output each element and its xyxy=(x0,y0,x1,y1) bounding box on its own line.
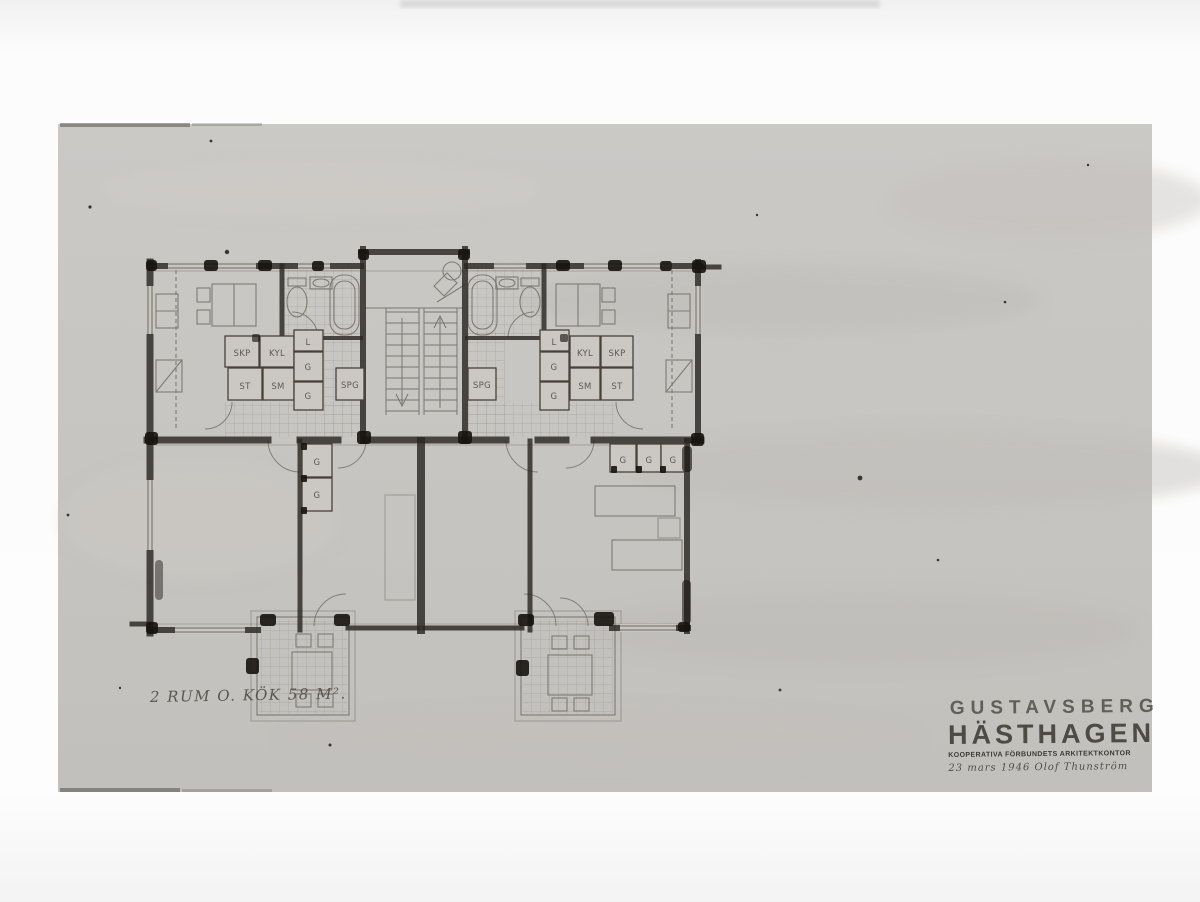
edge-smudge xyxy=(60,123,190,127)
label-spg-left: SPG xyxy=(341,381,359,391)
stamp-signature: 23 mars 1946 Olof Thunström xyxy=(947,761,1128,774)
label-l-left: L xyxy=(305,338,310,348)
label-kyl-left: KYL xyxy=(269,349,285,359)
scan-edge-shadow xyxy=(400,0,880,8)
label-g-hall-left-1: G xyxy=(314,458,321,468)
label-skp-right: SKP xyxy=(609,349,626,359)
edge-smudge xyxy=(60,788,180,792)
area-caption: 2 RUM O. KÖK 58 M². xyxy=(149,685,347,706)
stamp-project: HÄSTHAGEN xyxy=(948,718,1155,750)
label-g-hall-right-1: G xyxy=(620,456,627,466)
edge-smudge xyxy=(182,789,272,792)
label-g-right-2: G xyxy=(551,392,558,402)
label-g-right-1: G xyxy=(551,363,558,373)
stamp-location: GUSTAVSBERG xyxy=(950,696,1160,719)
edge-smudge xyxy=(192,123,262,126)
label-g-left-2: G xyxy=(305,392,312,402)
label-spg-right: SPG xyxy=(473,381,491,391)
label-l-right: L xyxy=(551,338,556,348)
archive-scan-page: SKP KYL ST SM L G G SPG SPG L G G KYL SK… xyxy=(0,0,1200,902)
label-skp-left: SKP xyxy=(234,349,251,359)
label-kyl-right: KYL xyxy=(577,349,593,359)
label-st-right: ST xyxy=(611,382,623,392)
scanned-drawing: SKP KYL ST SM L G G SPG SPG L G G KYL SK… xyxy=(0,0,1200,902)
label-st-left: ST xyxy=(239,382,251,392)
label-g-hall-right-2: G xyxy=(646,456,653,466)
label-g-hall-right-3: G xyxy=(670,456,677,466)
label-sm-right: SM xyxy=(578,382,591,392)
label-g-left-1: G xyxy=(305,363,312,373)
label-sm-left: SM xyxy=(271,382,284,392)
label-g-hall-left-2: G xyxy=(314,491,321,501)
